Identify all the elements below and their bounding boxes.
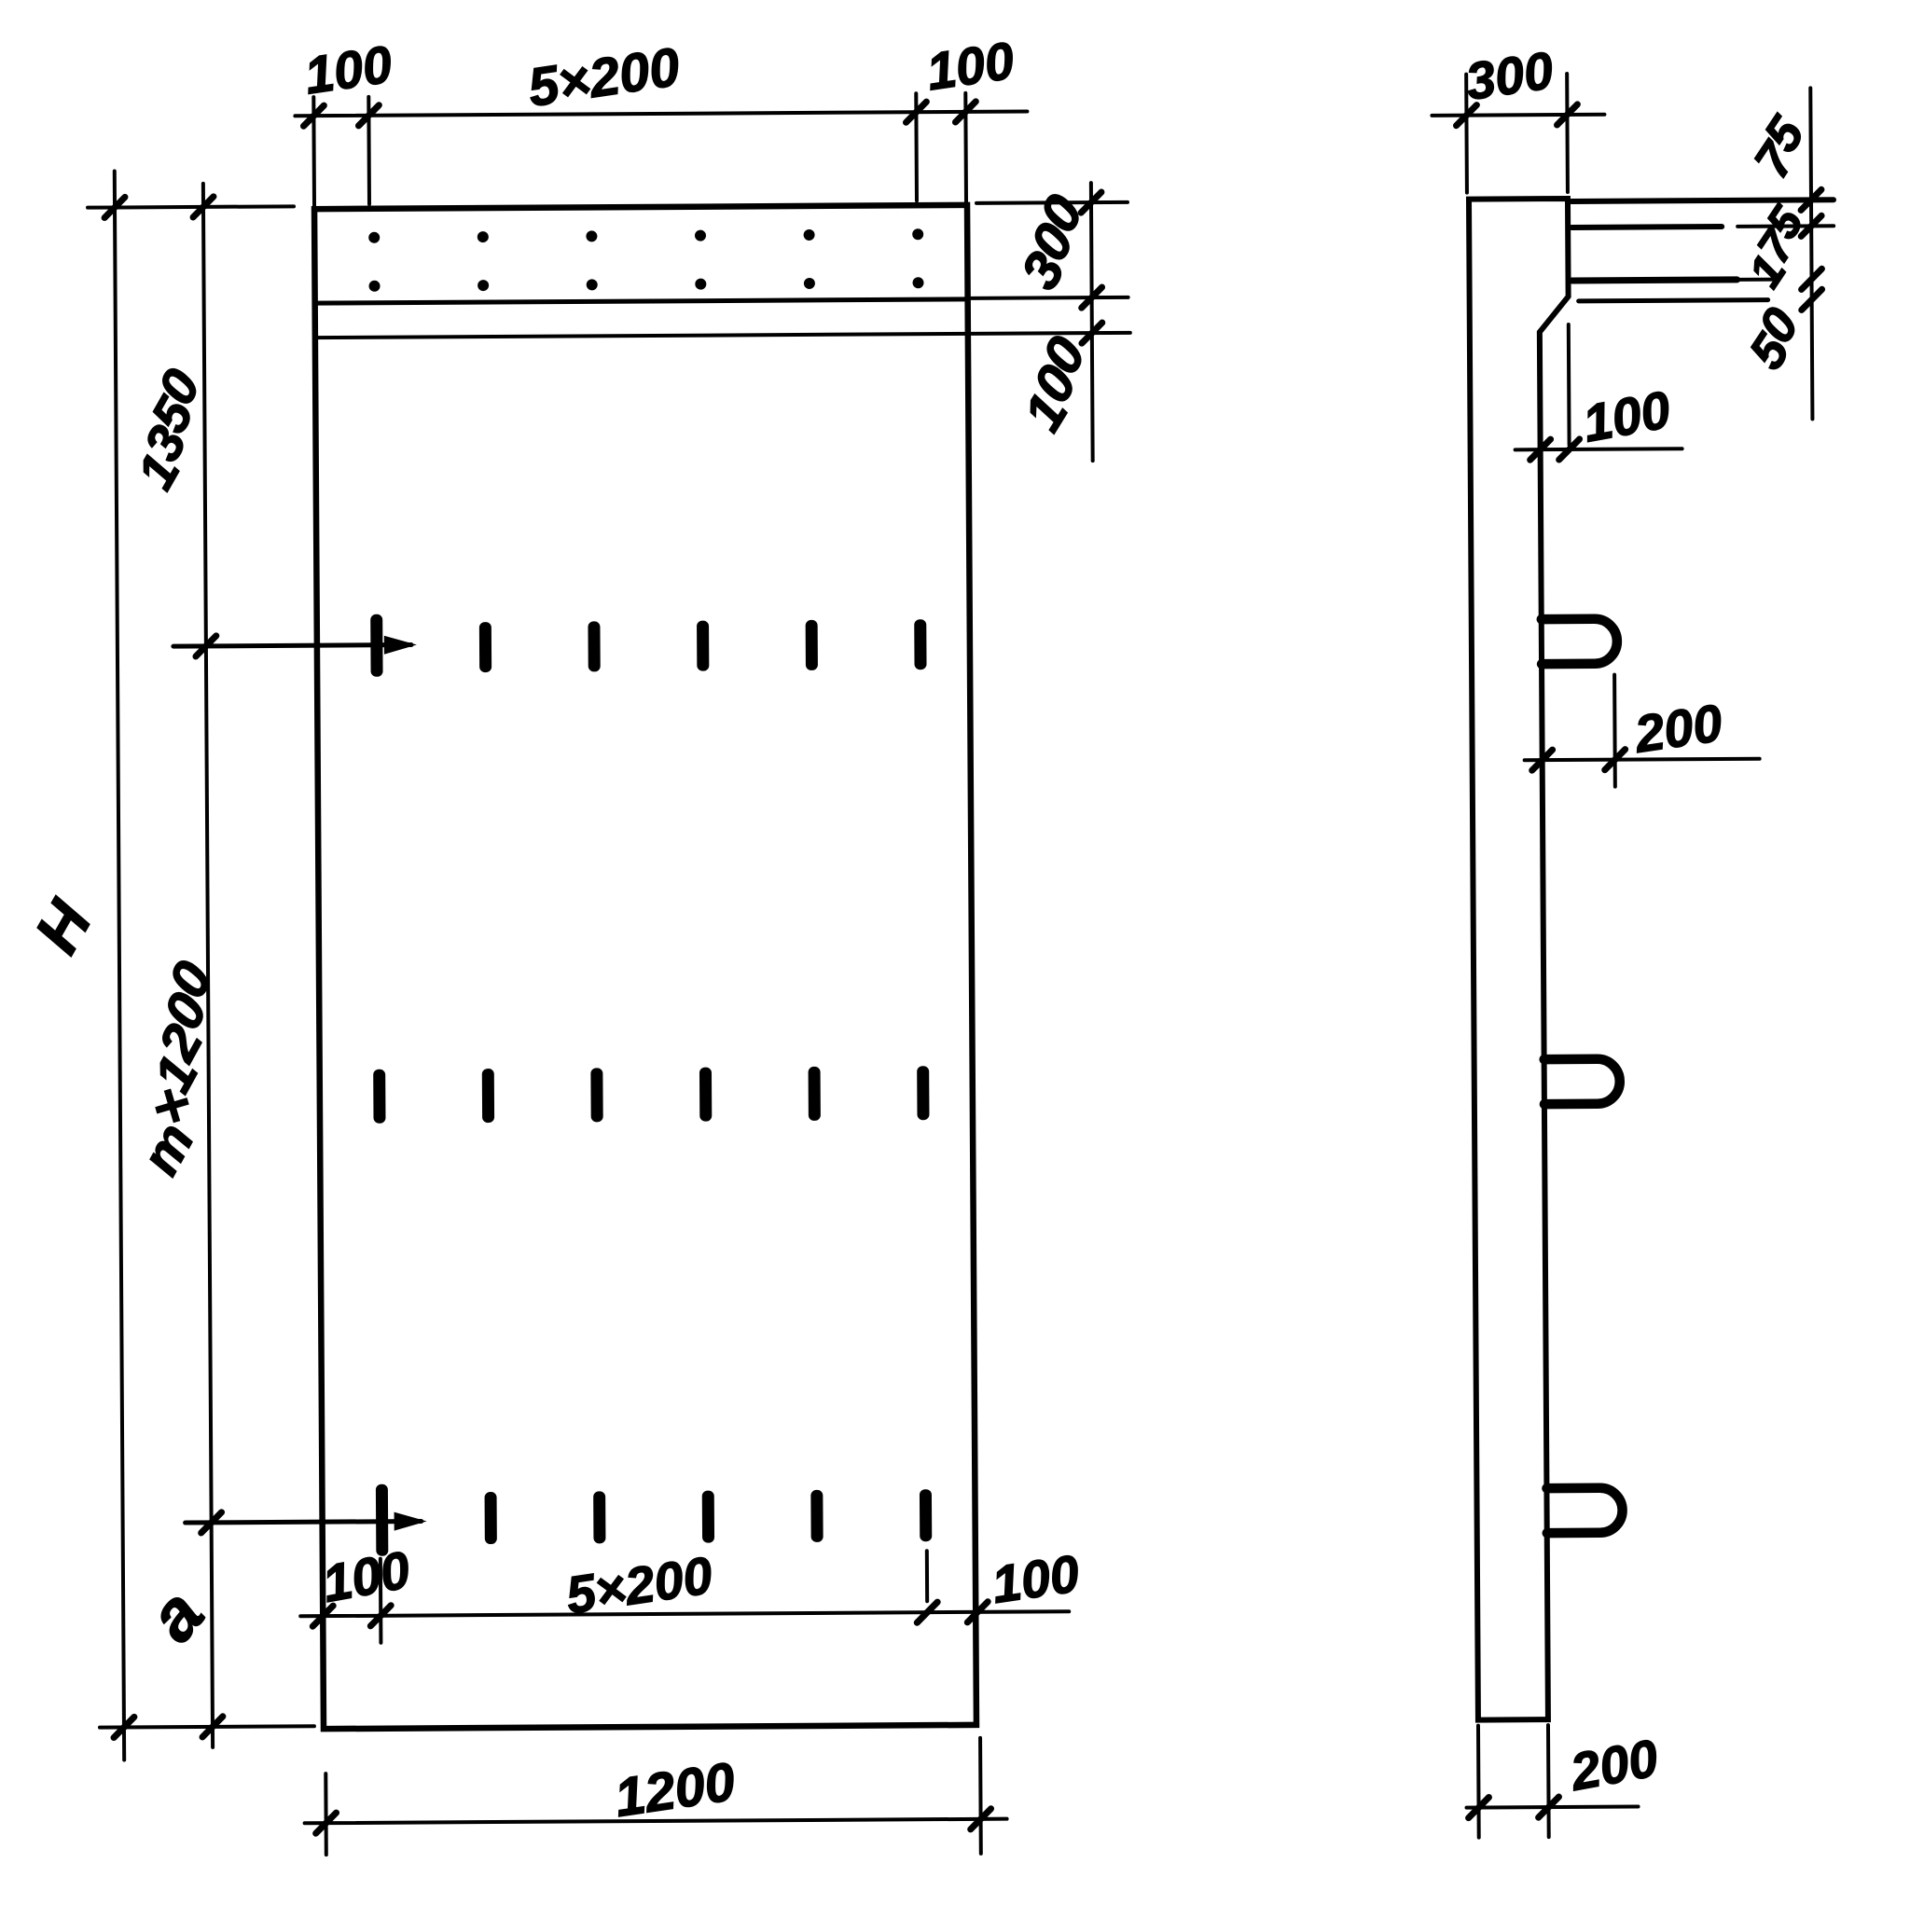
svg-text:200: 200	[1630, 693, 1726, 764]
svg-text:300: 300	[1005, 183, 1100, 302]
svg-text:5×200: 5×200	[524, 36, 684, 118]
svg-text:H: H	[21, 889, 106, 965]
svg-text:100: 100	[301, 34, 396, 105]
svg-text:100: 100	[923, 31, 1018, 102]
svg-text:100: 100	[989, 1543, 1084, 1614]
svg-text:300: 300	[1462, 40, 1557, 111]
svg-text:100: 100	[1578, 379, 1674, 453]
svg-text:m×1200: m×1200	[126, 948, 234, 1187]
svg-text:1350: 1350	[121, 357, 215, 500]
svg-text:75: 75	[1739, 104, 1820, 191]
svg-text:100: 100	[1008, 324, 1102, 444]
svg-text:100: 100	[318, 1539, 414, 1613]
svg-text:a: a	[132, 1575, 218, 1656]
svg-text:1200: 1200	[611, 1751, 739, 1828]
svg-text:200: 200	[1565, 1728, 1662, 1801]
